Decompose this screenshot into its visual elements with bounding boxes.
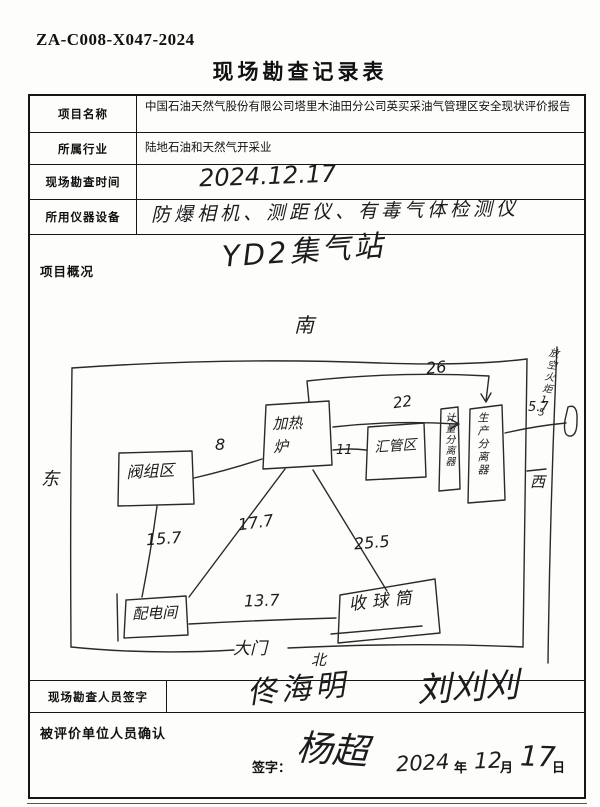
- handwritten-day: 17: [520, 742, 557, 771]
- survey-form-table: 项目名称 中国石油天然气股份有限公司塔里木油田分公司英买采油气管理区安全现状评价…: [28, 94, 586, 799]
- heater-node: 加热炉: [272, 412, 314, 458]
- compass-south-label: 南: [294, 315, 314, 335]
- equipment-label: 所用仪器设备: [30, 200, 137, 234]
- gate-label: 大门: [233, 641, 267, 658]
- industry-label: 所属行业: [30, 133, 137, 164]
- distance-26: 26: [425, 359, 447, 377]
- distance-11: 11: [336, 444, 353, 457]
- distance-5-7: 5.7: [528, 401, 549, 414]
- distance-25-5: 25.5: [353, 533, 390, 552]
- confirmation-row: 被评价单位人员确认 签字： 杨超 2024 年 12 月 17 日: [30, 712, 584, 797]
- distance-22: 22: [392, 394, 413, 412]
- distance-13-7: 13.7: [244, 592, 280, 609]
- handwritten-month: 12: [474, 751, 503, 774]
- distance-15-7: 15.7: [145, 530, 182, 548]
- surveyor-signature-label: 现场勘查人员签字: [30, 681, 167, 712]
- project-name-label: 项目名称: [30, 96, 137, 132]
- year-unit: 年: [454, 757, 467, 776]
- handwritten-signature-1: 佟海明: [246, 671, 350, 710]
- production-separator-node: 生产分离器: [477, 412, 488, 477]
- compass-west-label: 西: [530, 475, 545, 490]
- power-room-node: 配电间: [132, 605, 178, 622]
- surveyor-signatures: 佟海明 刘刈刈: [167, 681, 584, 712]
- manifold-node: 汇管区: [374, 438, 417, 455]
- handwritten-date: 2024.12.17: [199, 162, 337, 191]
- confirmation-label: 被评价单位人员确认: [40, 723, 166, 742]
- page-title: 现场勘查记录表: [0, 56, 600, 86]
- distance-8: 8: [215, 437, 225, 453]
- table-row: 所用仪器设备 防爆相机、测距仪、有毒气体检测仪: [30, 199, 584, 234]
- industry-value: 陆地石油和天然气开采业: [137, 133, 584, 164]
- month-unit: 月: [500, 757, 513, 776]
- compass-east-label: 东: [41, 471, 59, 489]
- day-unit: 日: [552, 757, 565, 776]
- project-name-value: 中国石油天然气股份有限公司塔里木油田分公司英买采油气管理区安全现状评价报告: [137, 96, 584, 132]
- confirmation-cell: 被评价单位人员确认 签字： 杨超 2024 年 12 月 17 日: [30, 713, 584, 797]
- surveyor-signature-row: 现场勘查人员签字 佟海明 刘刈刈: [30, 680, 584, 712]
- survey-time-value: 2024.12.17: [137, 165, 584, 199]
- survey-time-label: 现场勘查时间: [30, 165, 137, 199]
- table-row: 项目名称 中国石油天然气股份有限公司塔里木油田分公司英买采油气管理区安全现状评价…: [30, 96, 584, 132]
- handwritten-year: 2024: [395, 752, 449, 776]
- compass-north-label: 北: [311, 653, 326, 668]
- project-overview-row: 项目概况 YD2集气站: [30, 234, 584, 680]
- handwritten-equipment: 防爆相机、测距仪、有毒气体检测仪: [151, 200, 519, 225]
- sign-here-label: 签字：: [252, 757, 291, 776]
- handwritten-signature-2: 刘刈刈: [416, 668, 520, 707]
- table-row: 所属行业 陆地石油和天然气开采业: [30, 132, 584, 164]
- table-row: 现场勘查时间 2024.12.17: [30, 164, 584, 199]
- equipment-value: 防爆相机、测距仪、有毒气体检测仪: [137, 200, 584, 234]
- metering-separator-node: 计量分离器: [443, 412, 453, 467]
- sketch-strokes: [30, 235, 580, 680]
- handwritten-confirm-signature: 杨超: [295, 731, 369, 772]
- document-number: ZA-C008-X047-2024: [36, 30, 195, 50]
- site-sketch: 项目概况 YD2集气站: [30, 235, 584, 680]
- valve-area-node: 阀组区: [126, 462, 175, 480]
